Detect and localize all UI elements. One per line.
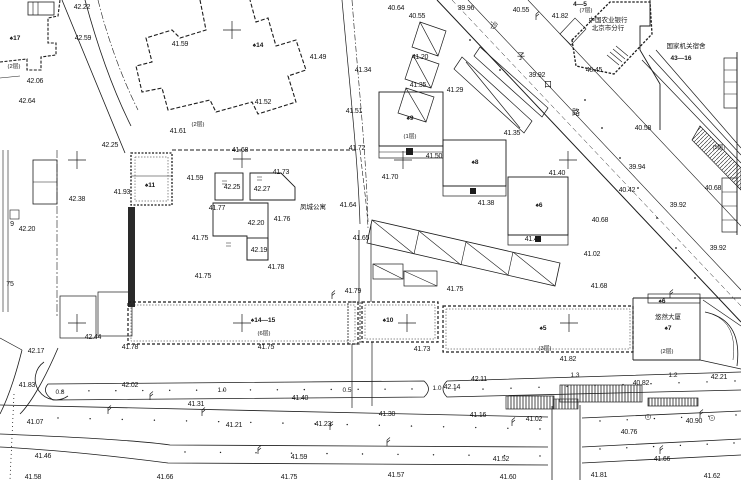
street-name-char: 子 bbox=[517, 52, 525, 61]
curb-dot bbox=[654, 418, 655, 419]
road-curb bbox=[0, 405, 741, 418]
elevation-label: 41.49 bbox=[310, 54, 327, 61]
curb-dot bbox=[735, 414, 736, 415]
elevation-label: 42.38 bbox=[69, 196, 86, 203]
curb-dot bbox=[88, 390, 89, 391]
elevation-label: 41.31 bbox=[188, 401, 205, 408]
dimension-label: 1.3 bbox=[570, 372, 579, 379]
curb-dot bbox=[347, 424, 348, 425]
elevation-label: 41.58 bbox=[25, 474, 42, 480]
elevation-label: 41.30 bbox=[379, 411, 396, 418]
curb-dot bbox=[282, 422, 283, 423]
building-number-label: ♠6 bbox=[535, 202, 542, 209]
building-number-label: ♠6 bbox=[658, 298, 665, 305]
curb-dot bbox=[220, 452, 221, 453]
building-number-label: ♠10 bbox=[383, 317, 394, 324]
curb-dot bbox=[277, 389, 278, 390]
wall-bar bbox=[128, 207, 135, 307]
curb-dot bbox=[142, 390, 143, 391]
street-lamp-icon bbox=[660, 446, 663, 455]
curb-dot bbox=[507, 428, 508, 429]
curb-dot bbox=[122, 419, 123, 420]
curb-dot bbox=[331, 389, 332, 390]
curb-dot bbox=[186, 420, 187, 421]
elevation-label: 41.60 bbox=[500, 474, 517, 480]
curb-dot bbox=[707, 444, 708, 445]
elevation-label: 41.50 bbox=[426, 153, 443, 160]
street-lamp-icon bbox=[332, 291, 335, 300]
curb-dot bbox=[326, 453, 327, 454]
street-lamp-icon bbox=[150, 392, 153, 401]
elevation-label: 41.38 bbox=[478, 200, 495, 207]
tree-icon bbox=[647, 416, 648, 417]
curb-dot bbox=[115, 390, 116, 391]
road-curb bbox=[0, 447, 741, 465]
curb-dot bbox=[89, 418, 90, 419]
elevation-label: 42.27 bbox=[254, 186, 271, 193]
curb-dot bbox=[734, 380, 735, 381]
elevation-label: 40.55 bbox=[513, 7, 530, 14]
labels-layer: 42.2242.5942.0642.6441.5941.6142.2541.52… bbox=[6, 1, 727, 480]
street-lamp-icon bbox=[512, 418, 515, 427]
curb-dot bbox=[411, 388, 412, 389]
elevation-label: 39.92 bbox=[670, 202, 687, 209]
tower-outline bbox=[633, 298, 741, 360]
floor-count-label: (7层) bbox=[580, 7, 593, 14]
curb-dot bbox=[357, 389, 358, 390]
elevation-label: 41.46 bbox=[35, 453, 52, 460]
curb-dot bbox=[680, 445, 681, 446]
survey-cross-icon bbox=[560, 314, 578, 332]
elevation-label: 41.16 bbox=[470, 412, 487, 419]
curb-dot bbox=[627, 419, 628, 420]
elevation-label: 42.06 bbox=[27, 78, 44, 85]
building-14-outline bbox=[136, 0, 306, 114]
elevation-label: 40.90 bbox=[686, 418, 703, 425]
strip-building-lines bbox=[642, 50, 741, 163]
elevation-label: 41.66 bbox=[654, 456, 671, 463]
building-number-label: ♠5 bbox=[539, 325, 546, 332]
curb-dot bbox=[57, 417, 58, 418]
cross-street-curbs bbox=[552, 405, 580, 480]
curb-dot bbox=[599, 420, 600, 421]
floor-count-label: (2层) bbox=[8, 63, 21, 70]
elevation-label: 41.52 bbox=[493, 456, 510, 463]
building-10-outline bbox=[362, 302, 438, 342]
elevation-label: 42.20 bbox=[248, 220, 265, 227]
elevation-label: 41.40 bbox=[549, 170, 566, 177]
elevation-label: 41.93 bbox=[114, 189, 131, 196]
curb-dot bbox=[538, 387, 539, 388]
curb-dot bbox=[362, 453, 363, 454]
survey-cross-icon bbox=[233, 314, 251, 332]
elevation-label: 40.68 bbox=[705, 185, 722, 192]
street-name-char: 路 bbox=[572, 107, 580, 117]
curb-dot bbox=[384, 388, 385, 389]
dimension-label: 0.8 bbox=[55, 389, 64, 396]
dimension-label: 1.2 bbox=[668, 372, 677, 379]
survey-cross-icon bbox=[223, 21, 241, 39]
elevation-label: 41.82 bbox=[560, 356, 577, 363]
building-number-label: 43—16 bbox=[671, 55, 692, 62]
elevation-label: 41.59 bbox=[172, 41, 189, 48]
elevation-label: 41.02 bbox=[584, 251, 601, 258]
elevation-label: 41.29 bbox=[447, 87, 464, 94]
street-lamp-icon bbox=[536, 12, 539, 21]
elevation-label: 41.52 bbox=[255, 99, 272, 106]
elevation-label: 41.35 bbox=[410, 82, 427, 89]
elevation-label: 42.25 bbox=[224, 184, 241, 191]
curb-dot bbox=[411, 425, 412, 426]
elevation-label: 41.68 bbox=[591, 283, 608, 290]
curb-dot bbox=[255, 452, 256, 453]
elevation-label: 41.23 bbox=[315, 421, 332, 428]
elevation-label: 42.21 bbox=[711, 374, 728, 381]
elevation-label: 41.40 bbox=[292, 395, 309, 402]
curb-dot bbox=[184, 451, 185, 452]
place-name-label: 凤城公寓 bbox=[300, 202, 326, 211]
elevation-label: 41.77 bbox=[209, 205, 226, 212]
elevation-label: 41.45 bbox=[525, 236, 542, 243]
curb-dot bbox=[433, 454, 434, 455]
curb-dot bbox=[250, 422, 251, 423]
elevation-label: 41.66 bbox=[157, 474, 174, 480]
street-lamp-icon bbox=[387, 438, 390, 447]
elevation-label: 41.02 bbox=[526, 416, 543, 423]
hatched-structure bbox=[648, 398, 698, 406]
curb-dot bbox=[539, 455, 540, 456]
parcel-boundary bbox=[640, 0, 660, 130]
elevation-label: 40.68 bbox=[592, 217, 609, 224]
place-name-label: 中国农业银行 bbox=[589, 15, 629, 24]
curb-dot bbox=[539, 428, 540, 429]
south-blocks-linework bbox=[443, 294, 741, 369]
elevation-label: 39.92 bbox=[529, 72, 546, 79]
elevation-label: 41.21 bbox=[226, 422, 243, 429]
elevation-label: 42.11 bbox=[471, 376, 487, 383]
survey-cross-icon bbox=[559, 151, 577, 169]
street-lamp-icon bbox=[258, 446, 261, 455]
elevation-label: 41.72 bbox=[349, 145, 366, 152]
curb-dot bbox=[154, 420, 155, 421]
elevation-label: 41.59 bbox=[187, 175, 204, 182]
partial-label: 9 bbox=[10, 221, 14, 228]
elevation-label: 41.62 bbox=[704, 473, 721, 480]
floor-count-label: (2层) bbox=[192, 121, 205, 128]
elevation-label: 41.68 bbox=[232, 147, 249, 154]
elevation-label: 41.61 bbox=[170, 128, 187, 135]
elevation-label: 41.70 bbox=[382, 174, 399, 181]
elevation-label: 41.34 bbox=[355, 67, 372, 74]
street-name-char: 沙 bbox=[490, 21, 498, 30]
curb-dot bbox=[594, 385, 595, 386]
survey-point-dot bbox=[637, 187, 639, 189]
dimension-label: 1.0 bbox=[217, 387, 226, 394]
elevation-label: 41.81 bbox=[591, 472, 608, 479]
elevation-label: 41.51 bbox=[346, 108, 363, 115]
elevation-label: 41.78 bbox=[268, 264, 285, 271]
elevation-label: 40.55 bbox=[409, 13, 426, 20]
elevation-label: 40.64 bbox=[388, 5, 405, 12]
curb-dot bbox=[708, 416, 709, 417]
elevation-label: 39.92 bbox=[710, 245, 727, 252]
elevation-label: 41.73 bbox=[414, 346, 431, 353]
roads-linework bbox=[0, 348, 741, 480]
elevation-label: 42.14 bbox=[444, 384, 461, 391]
dimension-label: 1.0 bbox=[432, 385, 441, 392]
curb-dot bbox=[397, 454, 398, 455]
elevation-label: 39.94 bbox=[629, 164, 646, 171]
topleft-linework bbox=[0, 0, 138, 480]
elevation-label: 41.79 bbox=[345, 288, 362, 295]
curb-dot bbox=[379, 425, 380, 426]
hatched-structure bbox=[506, 396, 554, 409]
survey-point-dot bbox=[619, 157, 621, 159]
building-number-label: ♠8 bbox=[471, 159, 478, 166]
elevation-label: 40.58 bbox=[635, 125, 652, 132]
elevation-label: 42.44 bbox=[85, 334, 102, 341]
curb-dot bbox=[482, 388, 483, 389]
floor-count-label: (5层) bbox=[713, 144, 726, 151]
curb-dot bbox=[733, 442, 734, 443]
elevation-label: 40.82 bbox=[633, 380, 650, 387]
curb-dot bbox=[475, 427, 476, 428]
elevation-label: 42.20 bbox=[19, 226, 36, 233]
building-11-outline bbox=[131, 153, 172, 205]
survey-cross-icon bbox=[68, 314, 86, 332]
elevation-label: 42.17 bbox=[28, 348, 45, 355]
place-name-label: 北京市分行 bbox=[592, 23, 625, 32]
compound-linework bbox=[128, 0, 438, 408]
building-number-label: ♠11 bbox=[145, 182, 156, 189]
elevation-label: 41.75 bbox=[281, 474, 298, 480]
site-plan-canvas: 42.2242.5942.0642.6441.5941.6142.2541.52… bbox=[0, 0, 741, 480]
elevation-label: 42.59 bbox=[75, 35, 92, 42]
elevation-label: 41.64 bbox=[340, 202, 357, 209]
elevation-label: 41.78 bbox=[122, 344, 139, 351]
building-number-label: ♠17 bbox=[10, 35, 21, 42]
elevation-label: 41.20 bbox=[412, 54, 429, 61]
building-number-label: ♠9 bbox=[406, 115, 413, 122]
survey-point-dot bbox=[584, 99, 586, 101]
elevation-label: 42.02 bbox=[122, 382, 139, 389]
curb-dot bbox=[196, 390, 197, 391]
corner-structure bbox=[28, 2, 54, 15]
hatched-structure bbox=[560, 385, 642, 402]
elevation-label: 42.22 bbox=[74, 4, 91, 11]
curb-dot bbox=[566, 386, 567, 387]
floor-count-label: (3层) bbox=[539, 345, 552, 352]
curb-dot bbox=[706, 381, 707, 382]
street-lamp-icon bbox=[108, 406, 111, 415]
curb-dot bbox=[622, 384, 623, 385]
floor-count-label: (2层) bbox=[661, 348, 674, 355]
survey-point-dot bbox=[601, 127, 603, 129]
curb-dot bbox=[218, 421, 219, 422]
east-buildings-linework bbox=[367, 22, 568, 286]
building-number-label: ♠7 bbox=[664, 325, 671, 332]
elevation-label: 40.76 bbox=[621, 429, 638, 436]
elevation-label: 40.42 bbox=[619, 187, 636, 194]
elevation-label: 40.45 bbox=[586, 67, 603, 74]
survey-point-dot bbox=[469, 39, 471, 41]
elevation-label: 42.25 bbox=[102, 142, 119, 149]
curb-dot bbox=[510, 388, 511, 389]
curved-road-edge bbox=[20, 348, 58, 414]
curb-dot bbox=[443, 426, 444, 427]
curb-dot bbox=[626, 447, 627, 448]
elevation-label: 41.82 bbox=[552, 13, 569, 20]
street-lamp-icon bbox=[202, 408, 205, 417]
curb-dot bbox=[250, 389, 251, 390]
elevation-label: 42.64 bbox=[19, 98, 36, 105]
elevation-label: 41.75 bbox=[192, 235, 209, 242]
building-number-label: 4—5 bbox=[573, 1, 587, 8]
curb-dot bbox=[650, 383, 651, 384]
survey-cross-icon bbox=[398, 314, 416, 332]
elevation-label: 39.96 bbox=[458, 5, 475, 12]
survey-cross-icon bbox=[68, 151, 86, 169]
elevation-label: 41.65 bbox=[353, 235, 370, 242]
elevation-label: 41.57 bbox=[388, 472, 405, 479]
elevation-label: 41.75 bbox=[447, 286, 464, 293]
curb-dot bbox=[681, 417, 682, 418]
elevation-label: 41.73 bbox=[273, 169, 290, 176]
floor-count-label: (1层) bbox=[404, 133, 417, 140]
building-number-label: ♠14 bbox=[253, 42, 264, 49]
elevation-label: 41.75 bbox=[258, 344, 275, 351]
place-name-label: 悠然大厦 bbox=[655, 312, 682, 321]
building-number-label: ♠14—15 bbox=[251, 317, 276, 324]
curb-dot bbox=[599, 448, 600, 449]
curb-dot bbox=[653, 446, 654, 447]
site-plan-page: 42.2242.5942.0642.6441.5941.6142.2541.52… bbox=[0, 0, 741, 480]
survey-point-dot bbox=[694, 277, 696, 279]
curb-dot bbox=[169, 390, 170, 391]
street-lamp-icon bbox=[700, 410, 703, 419]
road-edge bbox=[62, 0, 125, 153]
survey-point-dot bbox=[656, 217, 658, 219]
elevation-label: 41.76 bbox=[274, 216, 291, 223]
curb-dot bbox=[468, 455, 469, 456]
elevation-label: 41.59 bbox=[291, 454, 308, 461]
tree-icon bbox=[711, 417, 712, 418]
elevation-label: 41.75 bbox=[195, 273, 212, 280]
partial-label: 75 bbox=[6, 281, 14, 288]
elevation-label: 42.19 bbox=[251, 247, 268, 254]
street-name-char: 口 bbox=[544, 80, 552, 89]
dimension-label: 0.5 bbox=[342, 387, 351, 394]
sidewalk-band bbox=[45, 381, 428, 400]
elevation-label: 41.07 bbox=[27, 419, 44, 426]
curb-dot bbox=[304, 389, 305, 390]
curb-dot bbox=[678, 382, 679, 383]
elevation-label: 41.35 bbox=[504, 130, 521, 137]
survey-point-dot bbox=[499, 69, 501, 71]
place-name-label: 国家机关宿舍 bbox=[667, 41, 707, 50]
floor-count-label: (6层) bbox=[258, 330, 271, 337]
survey-point-dot bbox=[675, 247, 677, 249]
elevation-label: 41.83 bbox=[19, 382, 36, 389]
